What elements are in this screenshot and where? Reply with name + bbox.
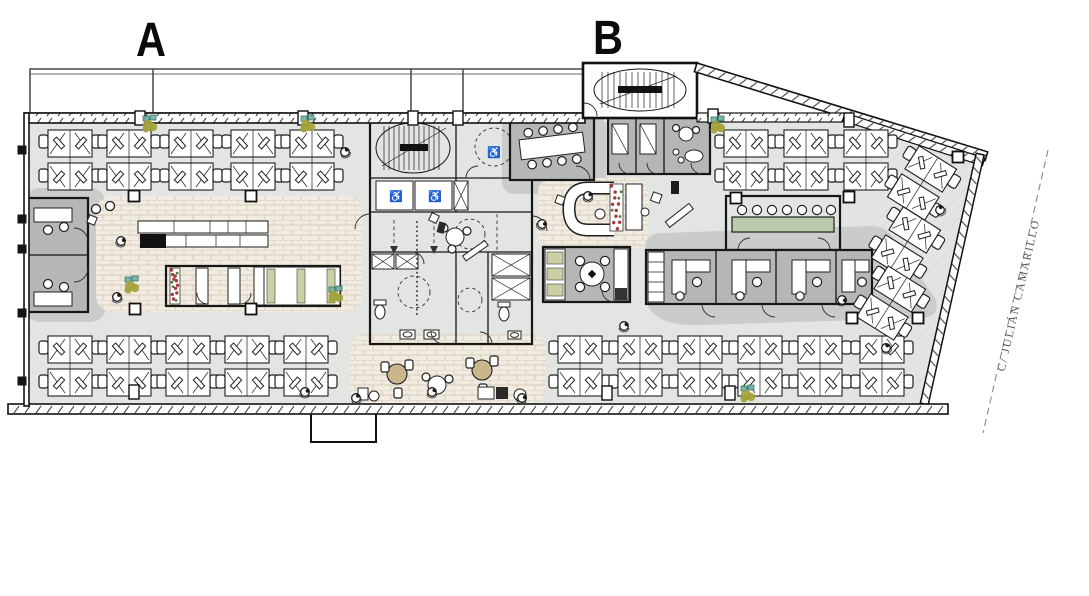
wheelchair-icon: ♿ — [428, 190, 442, 203]
wheelchair-icon: ♿ — [389, 190, 403, 203]
lunch-room — [543, 247, 630, 302]
flower-planter — [610, 184, 623, 231]
floor-plan: ♿ ♿ ♿ — [0, 0, 1089, 596]
structural-column — [130, 304, 141, 315]
structural-column — [129, 191, 140, 202]
floor-plan-page: ♿ ♿ ♿ — [0, 0, 1089, 596]
kitchen-counter — [138, 221, 268, 233]
wall-pillar — [844, 113, 854, 127]
flower-planter — [170, 268, 180, 304]
stair-core-b — [583, 63, 697, 118]
section-label-a: A — [136, 14, 166, 67]
private-offices — [28, 198, 88, 312]
wall-column — [18, 245, 27, 254]
wall-pillar — [725, 386, 735, 400]
section-label-b: B — [593, 12, 623, 65]
balcony — [311, 414, 376, 442]
meeting-room-large — [510, 118, 594, 180]
structural-column — [913, 313, 924, 324]
facade-west — [24, 113, 29, 406]
structural-column — [844, 192, 855, 203]
wall-column — [18, 215, 27, 224]
structural-column — [953, 152, 964, 163]
wall-pillar — [408, 111, 418, 125]
structural-column — [246, 191, 257, 202]
wall-pillar — [602, 386, 612, 400]
structural-column — [246, 304, 257, 315]
toilet — [374, 300, 386, 319]
wall-pillar — [129, 385, 139, 399]
wall-pillar — [453, 111, 463, 125]
meeting-table — [732, 217, 834, 232]
coffee-machine — [140, 234, 166, 248]
lockers — [648, 252, 664, 302]
street-label: C/ JULIÁN CAMARILLO — [994, 218, 1043, 373]
toilet — [498, 302, 510, 321]
structural-column — [847, 313, 858, 324]
wall-column — [18, 377, 27, 386]
wall-column — [18, 309, 27, 318]
facade-south — [8, 404, 948, 414]
wheelchair-icon: ♿ — [487, 146, 501, 159]
wall-column — [18, 146, 27, 155]
phone-booths — [608, 118, 710, 174]
structural-column — [731, 193, 742, 204]
terrace — [30, 69, 583, 113]
